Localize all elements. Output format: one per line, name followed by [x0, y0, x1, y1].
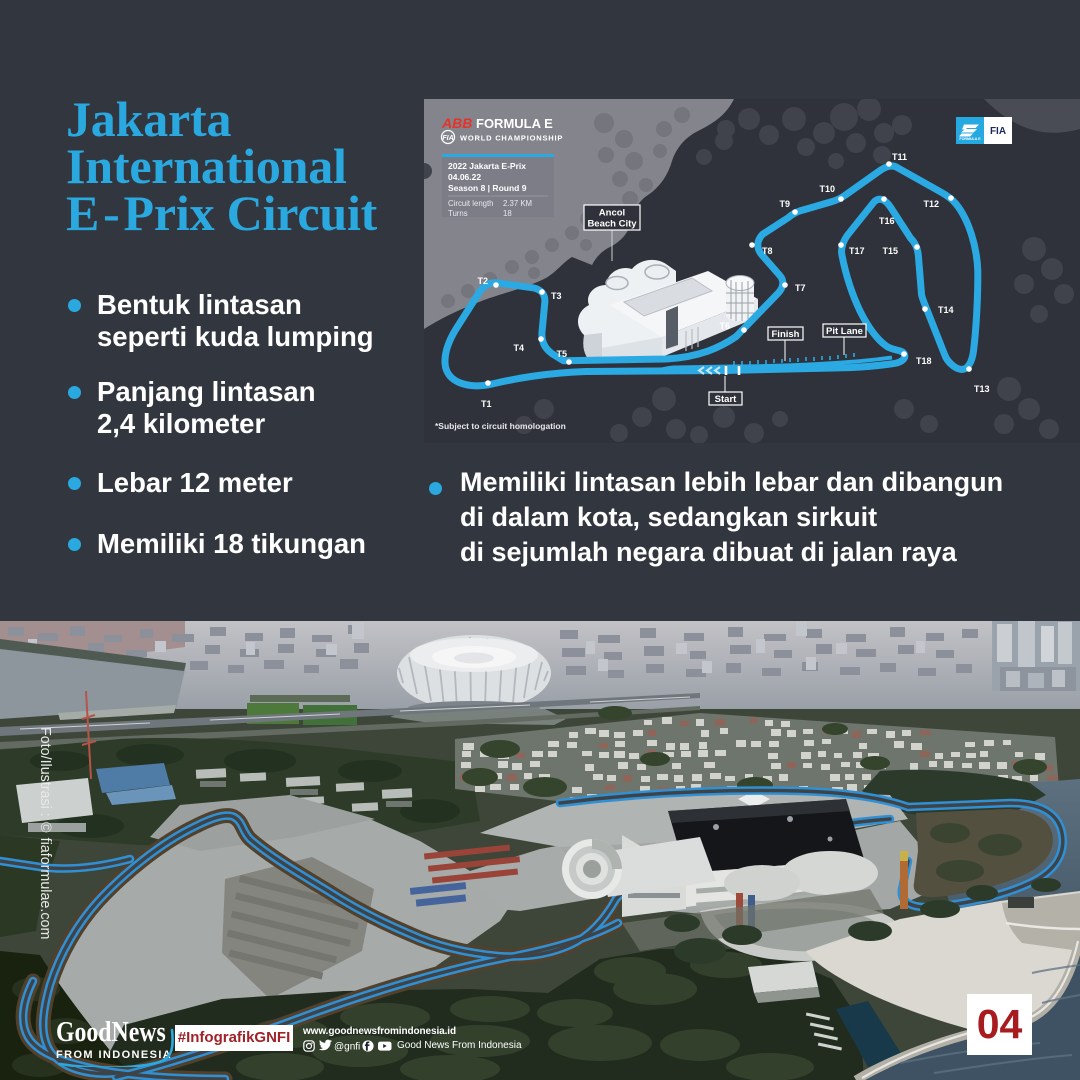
svg-text:T1: T1	[481, 399, 492, 409]
svg-text:T4: T4	[513, 343, 524, 353]
svg-text:T6: T6	[719, 321, 730, 331]
svg-text:18: 18	[503, 209, 512, 218]
svg-text:T15: T15	[882, 246, 898, 256]
svg-text:FIA: FIA	[442, 135, 453, 142]
svg-text:T10: T10	[819, 184, 835, 194]
svg-text:04.06.22: 04.06.22	[448, 172, 481, 182]
svg-text:T14: T14	[938, 305, 954, 315]
svg-text:T8: T8	[762, 246, 773, 256]
svg-text:Finish: Finish	[772, 329, 800, 340]
svg-text:T9: T9	[779, 199, 790, 209]
svg-text:Turns: Turns	[448, 209, 468, 218]
svg-text:FORMULA E: FORMULA E	[959, 137, 981, 141]
svg-text:2022 Jakarta E-Prix: 2022 Jakarta E-Prix	[448, 161, 526, 171]
svg-text:Circuit length: Circuit length	[448, 199, 494, 208]
svg-text:T12: T12	[923, 199, 939, 209]
svg-text:T3: T3	[551, 291, 562, 301]
svg-text:T11: T11	[892, 152, 907, 162]
svg-text:T17: T17	[849, 246, 865, 256]
svg-text:2.37 KM: 2.37 KM	[503, 199, 532, 208]
svg-text:FORMULA E: FORMULA E	[476, 116, 553, 131]
svg-text:Season 8 | Round 9: Season 8 | Round 9	[448, 183, 527, 193]
svg-text:Pit Lane: Pit Lane	[826, 326, 863, 337]
svg-text:FIA: FIA	[990, 126, 1006, 137]
svg-text:Beach City: Beach City	[587, 219, 637, 230]
svg-text:T2: T2	[477, 276, 488, 286]
svg-text:T16: T16	[879, 216, 895, 226]
svg-text:T7: T7	[795, 283, 806, 293]
svg-text:T5: T5	[556, 349, 567, 359]
svg-text:Start: Start	[715, 394, 737, 405]
svg-text:ABB: ABB	[441, 115, 472, 131]
svg-text:*Subject to circuit homologati: *Subject to circuit homologation	[435, 421, 566, 431]
svg-text:T13: T13	[974, 384, 990, 394]
svg-text:WORLD CHAMPIONSHIP: WORLD CHAMPIONSHIP	[460, 134, 563, 143]
svg-text:@gnfi: @gnfi	[334, 1042, 360, 1053]
svg-text:Ancol: Ancol	[599, 208, 625, 219]
svg-text:T18: T18	[916, 356, 932, 366]
